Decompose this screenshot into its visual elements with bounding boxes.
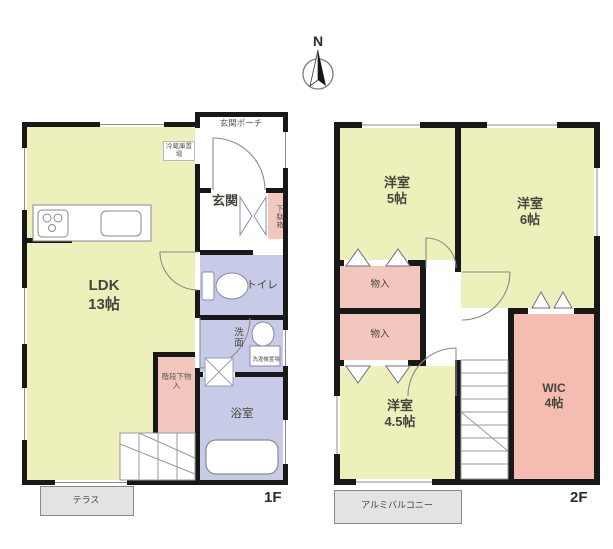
window (283, 330, 288, 366)
window (22, 148, 27, 210)
compass-label: N (310, 33, 326, 51)
bedroom45-name: 洋室 (387, 398, 413, 413)
bedroom45-label: 洋室 4.5帖 (347, 398, 453, 431)
room-bathroom (200, 377, 283, 480)
wic-size: 4帖 (516, 396, 592, 411)
window (100, 122, 164, 127)
window (334, 396, 340, 454)
window (22, 288, 27, 344)
toilet-label: トイレ (240, 279, 284, 292)
wall (22, 238, 72, 243)
door-opening (528, 308, 574, 314)
ldk-name: LDK (89, 277, 120, 294)
wic-name: WIC (542, 381, 565, 395)
bedroom6-size: 6帖 (483, 212, 577, 228)
wall (153, 352, 158, 442)
wall (455, 360, 461, 479)
wall (195, 112, 200, 485)
bathroom-label: 浴室 (220, 407, 264, 421)
wall (455, 122, 461, 272)
window (283, 420, 288, 464)
wic-label: WIC 4帖 (516, 381, 592, 411)
wall (508, 308, 514, 479)
wall (420, 260, 426, 366)
compass-icon (303, 50, 333, 89)
washroom-label: 洗面 (230, 323, 243, 351)
ldk-label: LDK 13帖 (58, 277, 150, 315)
entrance-label: 玄関 (202, 193, 248, 209)
ldk-size: 13帖 (58, 296, 150, 315)
balcony-label: アルミバルコニー (334, 500, 460, 511)
wall (200, 315, 283, 320)
window (594, 168, 600, 236)
wall (153, 352, 200, 357)
window (487, 122, 557, 128)
window (362, 122, 420, 128)
closet-lower-label: 物入 (340, 329, 420, 341)
bedroom6-name: 洋室 (517, 196, 543, 211)
entrance-porch-label: 玄関ポーチ (198, 118, 284, 129)
terrace-label: テラス (40, 495, 132, 506)
room-under-stairs-storage (158, 357, 195, 437)
closet-upper-label: 物入 (340, 279, 420, 291)
floorplan-canvas: N LDK 13帖 玄関ポーチ 玄関 下駄箱 冷蔵庫置場 トイレ 洗面 洗濯機置… (0, 0, 613, 549)
front-door-arc (213, 138, 265, 190)
shoe-cabinet-label: 下駄箱 (270, 196, 283, 238)
under-stairs-storage-label: 階段下物入 (161, 372, 192, 391)
door-opening (344, 360, 408, 366)
door-opening (253, 250, 283, 255)
refrigerator-space-label: 冷蔵庫置場 (163, 141, 195, 161)
floor2-label: 2F (570, 489, 588, 506)
door-opening (195, 252, 200, 290)
window (22, 388, 27, 440)
door-opening (203, 372, 235, 377)
bedroom5-name: 洋室 (384, 175, 410, 190)
door-opening (344, 260, 408, 266)
window (283, 132, 288, 168)
bedroom45-size: 4.5帖 (347, 414, 453, 430)
bedroom6-label: 洋室 6帖 (483, 196, 577, 229)
stairs-2f (461, 360, 508, 479)
laundry-space-label: 洗濯機置場 (250, 357, 282, 364)
wall (195, 112, 288, 117)
window (55, 480, 127, 485)
bedroom5-label: 洋室 5帖 (350, 175, 444, 208)
bedroom5-size: 5帖 (350, 191, 444, 207)
window (356, 479, 432, 485)
wall (334, 308, 426, 314)
door-opening (195, 318, 200, 368)
door-opening (195, 128, 200, 164)
wall (153, 437, 200, 442)
floor1-label: 1F (264, 489, 282, 506)
